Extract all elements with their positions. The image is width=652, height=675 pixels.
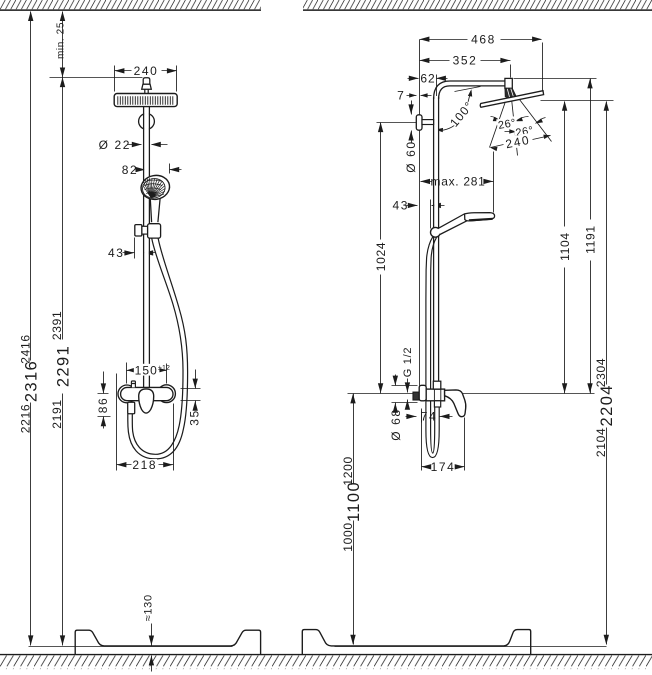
svg-text:Ø 68: Ø 68 [389,408,403,440]
svg-text:1100: 1100 [345,481,363,522]
svg-text:Ø 60: Ø 60 [404,140,418,172]
svg-text:2416: 2416 [18,334,32,364]
svg-text:74: 74 [421,410,438,424]
svg-text:2304: 2304 [594,358,608,388]
svg-text:≈130: ≈130 [143,594,155,621]
svg-text:2204: 2204 [598,384,616,426]
svg-text:100°: 100° [447,99,476,130]
svg-text:150±12: 150±12 [135,364,171,378]
svg-text:174: 174 [431,460,456,474]
svg-text:1000: 1000 [341,522,355,552]
svg-text:Ø 22: Ø 22 [99,138,131,152]
svg-text:min. 25: min. 25 [56,22,67,59]
svg-text:1024: 1024 [374,242,388,272]
svg-text:2291: 2291 [54,345,72,387]
svg-text:352: 352 [453,54,478,68]
svg-text:240: 240 [504,133,531,152]
svg-text:82: 82 [122,163,139,177]
svg-text:468: 468 [471,33,496,47]
svg-text:2216: 2216 [18,404,32,434]
svg-text:2191: 2191 [50,399,64,429]
svg-text:218: 218 [132,458,157,472]
svg-text:7: 7 [397,89,405,103]
svg-text:62: 62 [420,72,435,86]
svg-text:2316: 2316 [22,360,40,402]
svg-text:max. 281: max. 281 [431,175,486,189]
svg-text:2104: 2104 [594,428,608,458]
svg-text:1191: 1191 [583,225,597,254]
svg-text:1104: 1104 [558,232,572,261]
svg-text:35: 35 [188,409,202,426]
svg-text:43: 43 [108,246,125,260]
svg-text:1200: 1200 [341,456,355,486]
svg-text:240: 240 [134,64,159,78]
svg-text:43: 43 [393,199,410,213]
svg-text:86: 86 [96,397,110,414]
svg-text:G 1/2: G 1/2 [402,347,414,377]
svg-text:2391: 2391 [50,311,64,341]
